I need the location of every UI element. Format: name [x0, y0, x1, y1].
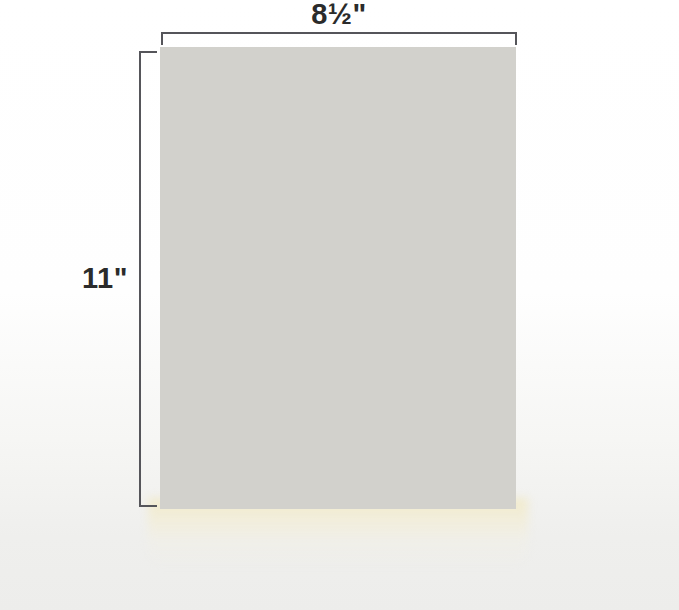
diagram-canvas: 8½" 11"	[0, 0, 679, 610]
paper-sheet	[160, 47, 516, 509]
height-dimension-label: 11"	[58, 264, 128, 293]
width-dimension-label: 8½"	[161, 0, 517, 29]
width-dimension-line	[161, 32, 517, 45]
height-dimension-line	[139, 51, 157, 507]
